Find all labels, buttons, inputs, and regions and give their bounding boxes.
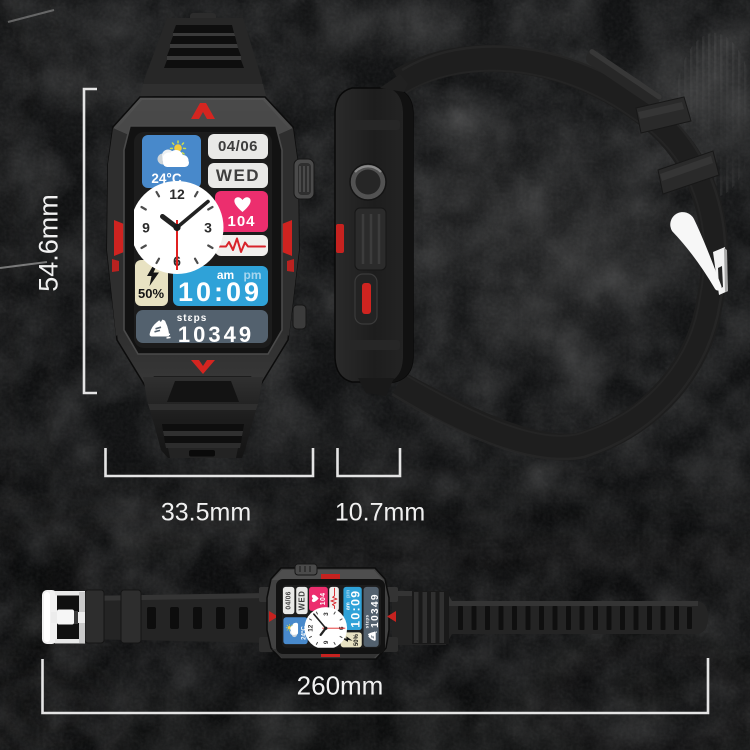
svg-text:12: 12 bbox=[169, 186, 185, 202]
svg-text:9: 9 bbox=[323, 640, 330, 644]
svg-text:3: 3 bbox=[323, 612, 330, 616]
svg-text:12: 12 bbox=[308, 624, 315, 632]
svg-text:3: 3 bbox=[204, 220, 212, 236]
svg-text:9: 9 bbox=[142, 220, 150, 236]
